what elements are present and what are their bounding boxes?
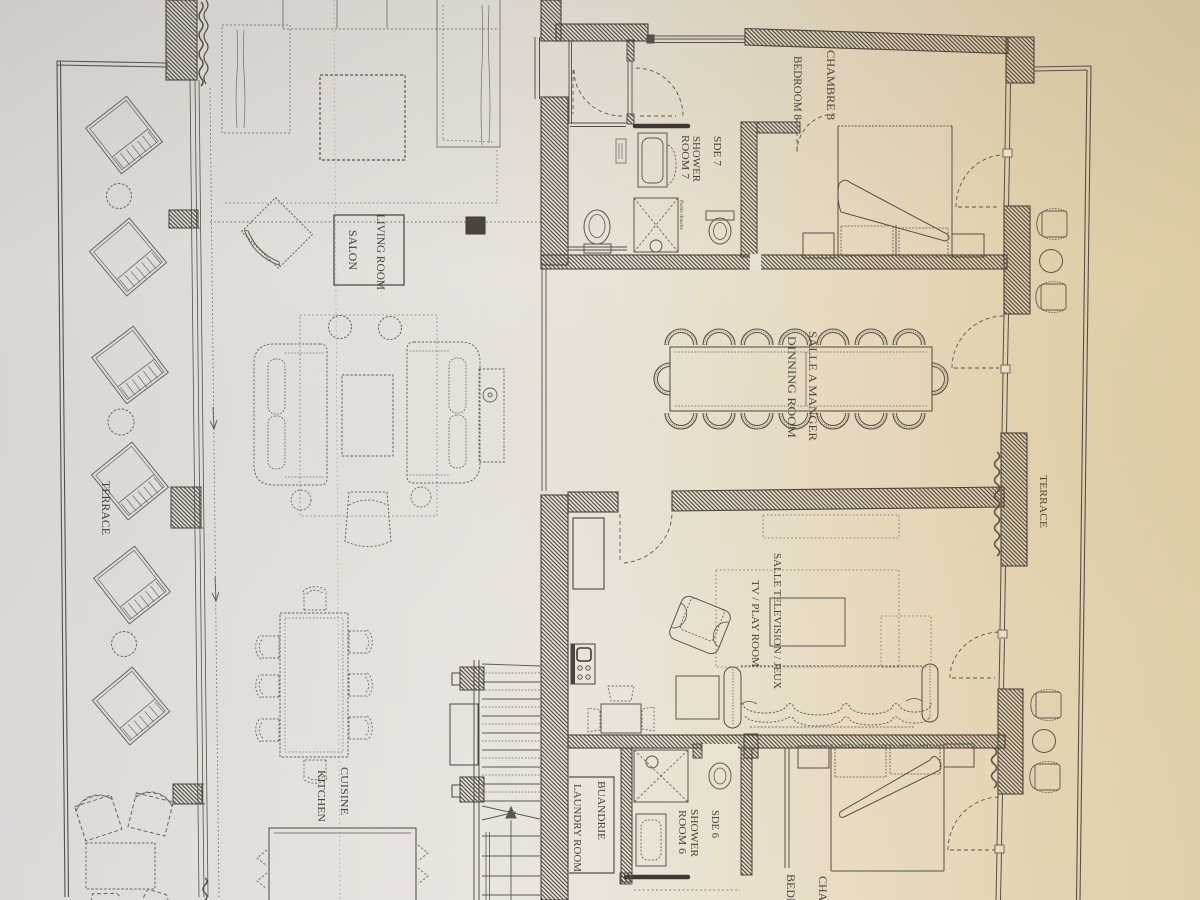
svg-text:SHOWER: SHOWER [688,809,699,857]
svg-text:BUANDRIE: BUANDRIE [595,781,607,840]
svg-text:LIVING ROOM: LIVING ROOM [374,214,388,290]
svg-text:SDE 6: SDE 6 [709,810,720,838]
svg-text:CHAMBRE 8: CHAMBRE 8 [824,50,838,120]
svg-text:SALON: SALON [346,230,360,270]
svg-text:TV / PLAY ROOM: TV / PLAY ROOM [749,580,760,668]
svg-text:CHAM: CHAM [816,876,830,900]
svg-text:Partie douche: Partie douche [678,200,684,231]
svg-text:CUISINE: CUISINE [338,767,350,815]
svg-text:KITCHEN: KITCHEN [315,770,327,822]
svg-text:SALLE A MANGER: SALLE A MANGER [806,331,818,441]
svg-text:TERRACE: TERRACE [1037,475,1049,528]
svg-text:ROOM 6: ROOM 6 [676,810,687,854]
svg-text:TERRACE: TERRACE [99,481,111,535]
svg-text:BEDROOM 8: BEDROOM 8 [791,56,805,120]
svg-text:DINNING ROOM: DINNING ROOM [785,336,797,438]
svg-text:LAUNDRY ROOM: LAUNDRY ROOM [571,784,583,872]
svg-text:SALLE TELEVISION / JEUX: SALLE TELEVISION / JEUX [771,553,782,689]
svg-text:ROOM 7: ROOM 7 [679,135,690,179]
svg-text:SHOWER: SHOWER [690,136,701,182]
svg-text:BEDR: BEDR [784,874,798,900]
svg-text:SDE 7: SDE 7 [711,136,722,166]
